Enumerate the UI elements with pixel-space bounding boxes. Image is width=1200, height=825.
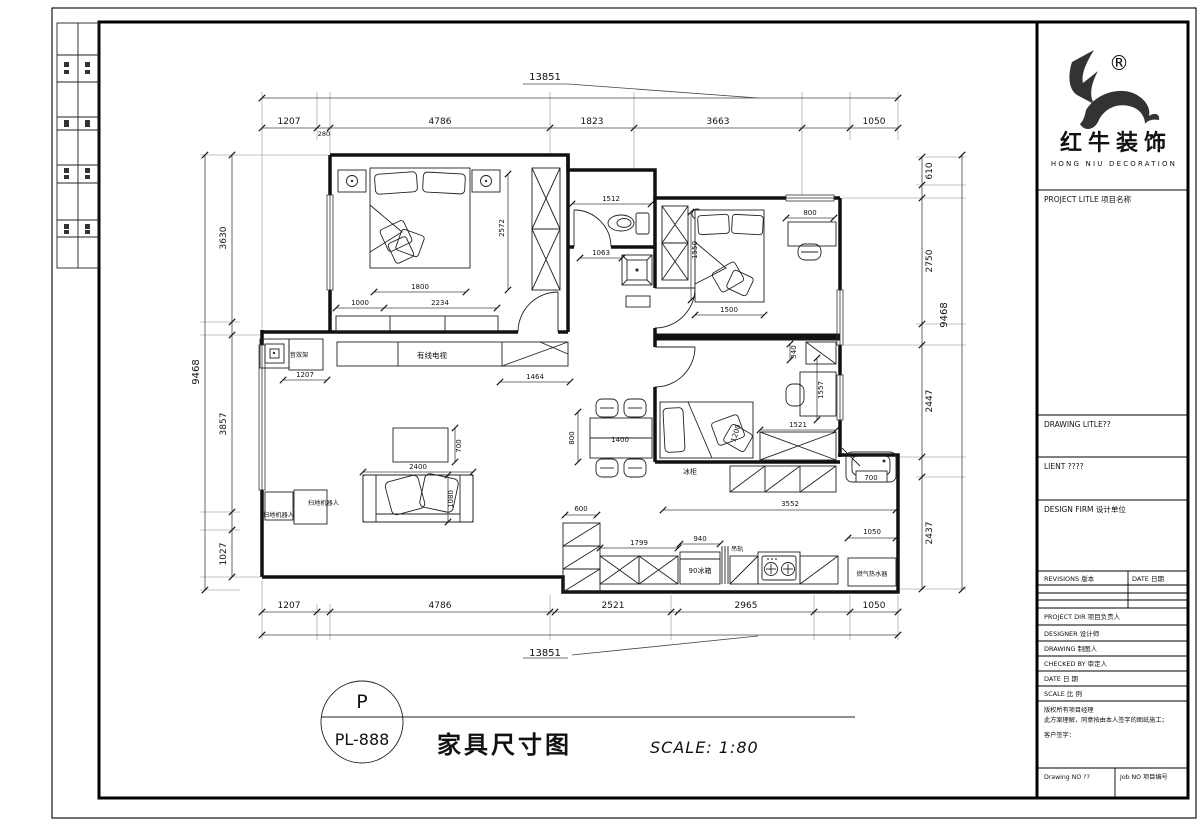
dim-top-1b: 280	[318, 130, 330, 138]
date-col-label: DATE 日期	[1132, 575, 1164, 583]
dim-tv: 1464	[526, 373, 544, 381]
dim-right-3: 2447	[925, 390, 935, 413]
dim-k1799: 1799	[630, 539, 648, 547]
dim-table-w: 2400	[409, 463, 427, 471]
dim-study-b: 1557	[817, 381, 825, 399]
dim-bottom-1: 1207	[278, 601, 301, 611]
bathroom-fixtures	[608, 213, 652, 307]
dim-study-a: 340	[790, 345, 798, 358]
date-label: DATE 日 期	[1044, 675, 1079, 683]
dim-shelf: 1207	[296, 371, 314, 379]
dim-top-2: 4786	[429, 117, 452, 127]
drawing-person-label: DRAWING 制图人	[1044, 644, 1098, 653]
label-vacuum-b: 扫地机器人	[308, 499, 339, 507]
floorplan-canvas: 13851 1207 280 4786 1823 3663 1050 1207 …	[0, 0, 1200, 825]
dim-left-1: 3630	[219, 226, 229, 249]
dim-right-1: 610	[925, 162, 935, 179]
dim-bottom-3: 2521	[602, 601, 625, 611]
brand-name-en: HONG NIU DECORATION	[1051, 160, 1177, 168]
doors	[518, 210, 695, 387]
dimension-texts: 13851 1207 280 4786 1823 3663 1050 1207 …	[191, 72, 950, 659]
label-shelf: 音效架	[290, 351, 309, 359]
design-firm-label: DESIGN FIRM 设计单位	[1044, 504, 1126, 514]
dim-table-d: 700	[455, 439, 463, 452]
bull-logo-body-icon	[1080, 91, 1159, 129]
dim-shower: 1063	[592, 249, 610, 257]
checked-by-label: CHECKED BY 审定人	[1044, 659, 1108, 668]
living-furniture	[260, 339, 568, 524]
dim-study-c: 1521	[789, 421, 807, 429]
dim-k3552: 3552	[781, 500, 799, 508]
drawing-title: 家具尺寸图	[437, 731, 572, 759]
dim-k600: 600	[574, 505, 587, 513]
drawing-sheet: 13851 1207 280 4786 1823 3663 1050 1207 …	[0, 0, 1200, 825]
dim-bed1-width: 1800	[411, 283, 429, 291]
brand-name-cn: 红牛装饰	[1060, 130, 1172, 156]
drawing-no-label: Drawing NO ??	[1044, 774, 1090, 781]
dim-bed1-height: 2572	[498, 219, 506, 237]
dim-top-4: 3663	[707, 117, 730, 127]
label-freezer: 冰柜	[683, 467, 697, 476]
dim-k1050: 1050	[863, 528, 881, 536]
dim-bottom-total: 13851	[529, 648, 561, 659]
label-heater: 燃气热水器	[857, 570, 889, 578]
project-dir-label: PROJECT DIR 项目负责人	[1044, 612, 1121, 621]
revisions-label: REVISIONS 版本	[1044, 574, 1095, 583]
fold-strip-glyphs	[64, 62, 90, 234]
kitchen-fixtures	[563, 523, 896, 592]
dim-bed2-desk: 800	[803, 209, 816, 217]
dim-left-2: 3857	[219, 413, 229, 436]
footer: P PL-888 家具尺寸图 SCALE: 1:80	[321, 681, 855, 763]
label-tv: 有线电视	[417, 350, 447, 360]
exterior-walls	[262, 155, 898, 592]
dim-bed1-b: 2234	[431, 299, 449, 307]
study-furniture	[660, 342, 836, 460]
dim-dining-d: 800	[568, 431, 576, 444]
dim-left-total: 9468	[191, 359, 202, 384]
dim-top-3: 1823	[581, 117, 604, 127]
copyright-line1: 版权所有项目经理	[1044, 706, 1094, 714]
project-title-label: PROJECT LITLE 项目名称	[1044, 194, 1132, 204]
dim-top-5: 1050	[863, 117, 886, 127]
dim-bed2-width: 1500	[720, 306, 738, 314]
copyright-line3: 客户签字：	[1044, 731, 1075, 739]
dim-right-total: 9468	[939, 302, 950, 327]
sheet-bubble-number: PL-888	[335, 730, 390, 749]
registered-icon: ®	[1109, 51, 1129, 75]
bull-logo-icon	[1069, 50, 1098, 104]
dim-dining-w: 1400	[611, 436, 629, 444]
dim-sink: 700	[864, 474, 877, 482]
scale-label: SCALE 比 例	[1044, 689, 1082, 698]
dim-bed1-a: 1000	[351, 299, 369, 307]
dim-bed2-height: 1550	[691, 241, 699, 259]
dim-top-total: 13851	[529, 72, 561, 83]
dim-bath-width: 1512	[602, 195, 620, 203]
copyright-line2: 此方案理解，同意按由本人签字的图纸施工；	[1044, 716, 1168, 724]
title-block: ® 红牛装饰 HONG NIU DECORATION PROJECT LITLE…	[1037, 22, 1188, 798]
drawing-scale: SCALE: 1:80	[650, 738, 759, 757]
label-rail: 吊轨	[731, 545, 743, 553]
dim-right-4: 2437	[925, 522, 935, 545]
label-fridge: 90冰箱	[689, 566, 712, 575]
dim-bottom-5: 1050	[863, 601, 886, 611]
dim-right-2: 2750	[925, 249, 935, 272]
dim-k940: 940	[693, 535, 706, 543]
label-vacuum-a: 扫地机器人	[263, 511, 294, 519]
client-label: LIENT ????	[1044, 462, 1084, 471]
job-no-label: Job NO 项目编号	[1119, 773, 1168, 781]
dim-top-1: 1207	[278, 117, 301, 127]
company-logo: ® 红牛装饰 HONG NIU DECORATION	[1051, 50, 1177, 168]
designer-label: DESIGNER 设计师	[1044, 629, 1100, 638]
dim-bottom-4: 2965	[735, 601, 758, 611]
fold-strip	[57, 23, 99, 268]
dim-left-3: 1027	[219, 543, 229, 566]
dim-bottom-2: 4786	[429, 601, 452, 611]
drawing-title-label: DRAWING LITLE??	[1044, 420, 1111, 429]
sheet-bubble-letter: P	[356, 691, 367, 713]
dim-sofa-d: 1080	[447, 490, 455, 508]
